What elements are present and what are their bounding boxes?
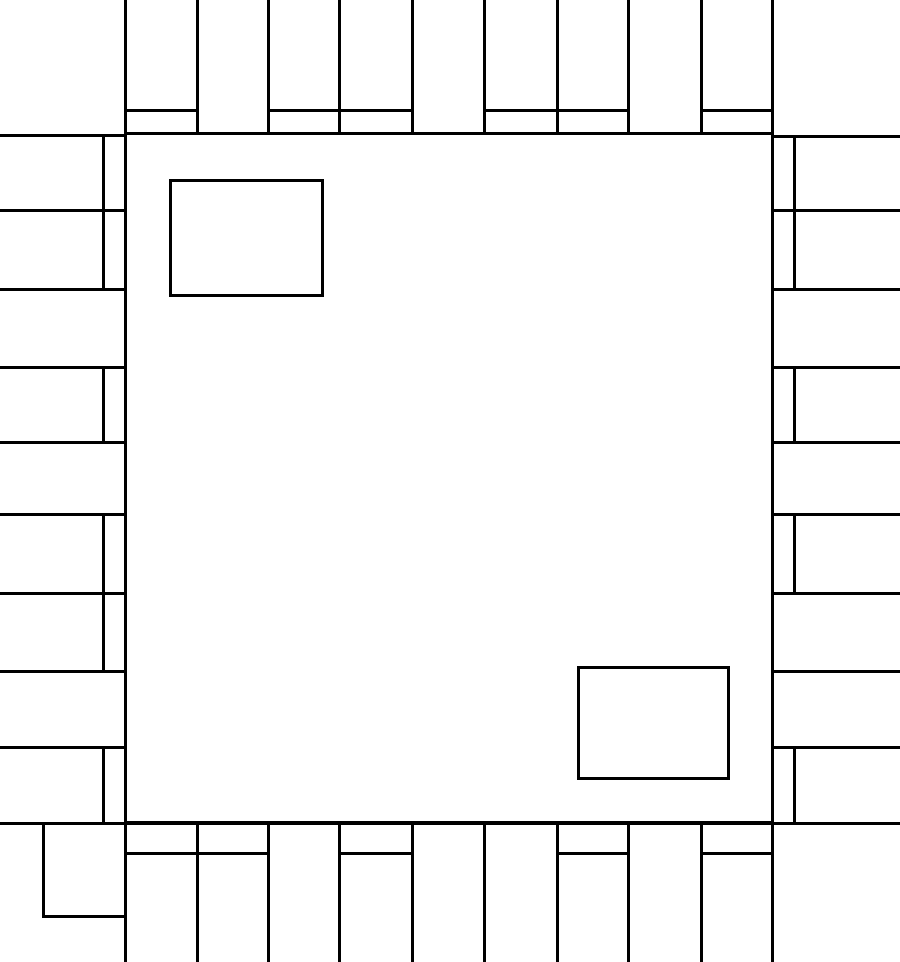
bottom-pin-foot-line-3 — [338, 852, 414, 855]
bottom-pin-boundary-line-6 — [556, 822, 559, 962]
top-pin-boundary-line-5 — [483, 0, 486, 135]
top-pin-foot-line-6 — [556, 109, 630, 112]
bottom-pin-boundary-line-9 — [771, 822, 774, 962]
bottom-pin-boundary-line-1 — [196, 822, 199, 962]
top-pin-boundary-line-0 — [124, 0, 127, 135]
left-pin-foot-line-8 — [102, 746, 105, 825]
top-pin-foot-line-0 — [124, 109, 199, 112]
bottom-edge-full-line — [0, 822, 900, 825]
right-pin-foot-line-0 — [793, 135, 796, 212]
left-pin-boundary-line-1 — [0, 209, 127, 212]
top-pin-foot-line-3 — [338, 109, 414, 112]
corner-pad-bottom-line — [42, 915, 127, 918]
top-pin-boundary-line-1 — [196, 0, 199, 135]
right-pin-boundary-line-0 — [771, 135, 900, 138]
left-pin-boundary-line-7 — [0, 670, 127, 673]
top-pin-boundary-line-7 — [627, 0, 630, 135]
right-pin-foot-line-8 — [793, 746, 796, 825]
bottom-pin-boundary-line-8 — [700, 822, 703, 962]
top-pin-boundary-line-3 — [338, 0, 341, 135]
right-pin-foot-line-1 — [793, 209, 796, 291]
index-mark-top-left — [169, 179, 324, 297]
left-pin-boundary-line-8 — [0, 746, 127, 749]
left-pin-boundary-line-3 — [0, 366, 127, 369]
bottom-pin-foot-line-1 — [196, 852, 270, 855]
right-pin-boundary-line-5 — [771, 513, 900, 516]
corner-pad-left-line — [42, 822, 45, 918]
bottom-pin-boundary-line-7 — [627, 822, 630, 962]
left-pin-boundary-line-6 — [0, 592, 127, 595]
top-pin-foot-line-2 — [267, 109, 341, 112]
right-pin-foot-line-3 — [793, 366, 796, 444]
right-pin-boundary-line-3 — [771, 366, 900, 369]
left-pin-boundary-line-4 — [0, 441, 127, 444]
bottom-pin-boundary-line-3 — [338, 822, 341, 962]
right-pin-boundary-line-4 — [771, 441, 900, 444]
left-pin-boundary-line-2 — [0, 288, 127, 291]
bottom-pin-boundary-line-0 — [124, 822, 127, 962]
right-pin-boundary-line-1 — [771, 209, 900, 212]
right-pin-foot-line-5 — [793, 513, 796, 595]
bottom-pin-boundary-line-4 — [411, 822, 414, 962]
top-pin-boundary-line-8 — [700, 0, 703, 135]
right-pin-boundary-line-8 — [771, 746, 900, 749]
bottom-pin-foot-line-6 — [556, 852, 630, 855]
right-pin-boundary-line-7 — [771, 670, 900, 673]
left-pin-foot-line-0 — [102, 134, 105, 212]
top-pin-foot-line-5 — [483, 109, 559, 112]
bottom-pin-boundary-line-2 — [267, 822, 270, 962]
ic-footprint-diagram — [0, 0, 900, 962]
bottom-pin-foot-line-8 — [700, 852, 774, 855]
left-pin-foot-line-6 — [102, 592, 105, 673]
top-pin-boundary-line-2 — [267, 0, 270, 135]
top-pin-foot-line-8 — [700, 109, 774, 112]
left-pin-foot-line-5 — [102, 513, 105, 595]
top-pin-boundary-line-6 — [556, 0, 559, 135]
right-pin-boundary-line-6 — [771, 592, 900, 595]
bottom-pin-foot-line-0 — [124, 852, 199, 855]
top-pin-boundary-line-4 — [411, 0, 414, 135]
left-pin-boundary-line-0 — [0, 134, 127, 137]
left-pin-boundary-line-5 — [0, 513, 127, 516]
left-pin-foot-line-3 — [102, 366, 105, 444]
left-pin-foot-line-1 — [102, 209, 105, 291]
index-mark-bottom-right — [577, 666, 730, 780]
right-pin-boundary-line-2 — [771, 288, 900, 291]
top-pin-boundary-line-9 — [771, 0, 774, 135]
bottom-pin-boundary-line-5 — [483, 822, 486, 962]
